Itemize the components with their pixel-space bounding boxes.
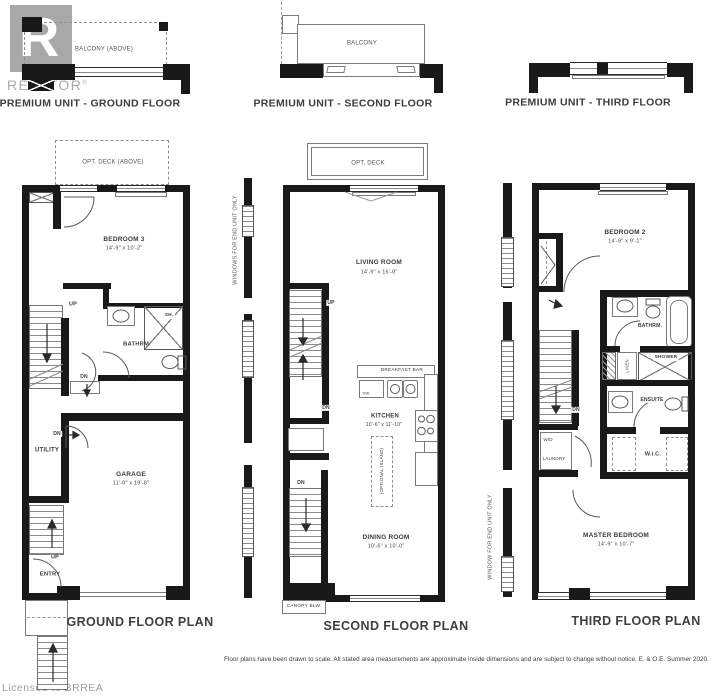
dn-label: DN [52,431,62,437]
door-panel [396,66,415,73]
staircase [539,330,572,423]
garage-label: GARAGE [116,471,146,479]
window-sill [572,75,665,79]
dn-label: DN [321,405,331,411]
wall-segment [22,496,69,503]
exterior-stairs [37,636,68,690]
wall-segment [22,17,42,32]
chase [602,352,616,380]
wall-break [244,298,252,314]
breakfast-bar-label: BREAKFAST BAR [381,368,423,374]
dining-room-label: DINING ROOM [363,534,410,542]
wall-segment [600,380,695,386]
dn-label: DN [296,480,306,486]
window-sill [115,192,167,197]
up-label: UP [326,300,335,306]
staircase [29,305,63,389]
header-ground-title: PREMIUM UNIT - GROUND FLOOR [0,97,180,110]
window [60,185,97,192]
up-label: UP [69,302,77,309]
wall-segment [434,78,443,93]
up-label: UP [50,555,60,562]
entry-stoop-marker [28,80,54,91]
header-third-title: PREMIUM UNIT - THIRD FLOOR [505,96,671,109]
vanity [608,391,633,413]
wall-segment [61,421,69,498]
window [538,592,571,600]
stair-landing [70,381,100,394]
shower-label: SH. [164,313,175,319]
bathroom-label: BATHRM. [123,341,151,348]
wall-segment [420,64,443,78]
end-unit-window [501,237,514,287]
bedroom2-label: BEDROOM 2 [604,229,645,237]
wall-break [503,288,512,302]
bathtub-basin [670,300,688,344]
wall-segment [569,588,590,600]
wall-segment [283,583,335,595]
utility-label: UTILITY [35,447,59,455]
dn-label: DN [79,374,89,380]
end-unit-window [501,556,514,592]
registered-mark: ® [82,80,88,86]
wall-segment [529,77,538,93]
wall-segment [283,418,329,424]
door-panel [326,66,345,73]
kitchen-sink [387,380,403,398]
wall-segment [98,375,190,381]
end-unit-window [242,205,254,237]
ensuite-label: ENSUITE [639,397,664,403]
window [570,62,667,75]
third-end-unit-note: WINDOW FOR END UNIT ONLY [488,494,495,580]
linen-label: LINEN [624,359,629,372]
patio-door [350,185,418,192]
wall-segment [57,586,80,600]
stoop-edge [27,617,66,618]
wall-segment [53,192,61,229]
door-sill [352,192,416,196]
canopy-label: CANOPY BLW. [287,604,322,610]
wall-break [244,443,252,465]
living-room-label: LIVING ROOM [356,259,402,267]
third-plan-title: THIRD FLOOR PLAN [571,614,700,628]
wall-segment [61,413,190,421]
living-room-dims: 14'-9" x 16'-0" [361,270,398,277]
wall-segment [684,77,693,93]
dn-label: DN [571,407,581,413]
wall-segment [159,22,168,31]
entry-label: ENTRY [40,571,60,578]
staircase-down [289,488,322,557]
ground-plan-title: GROUND FLOOR PLAN [66,615,213,629]
vanity [612,297,638,317]
end-unit-window [501,340,514,420]
second-end-unit-note: WINDOWS FOR END UNIT ONLY [233,195,240,284]
washer-dryer-label: W/D [543,437,552,443]
stove [415,410,438,442]
wall-segment [163,64,190,80]
entry-staircase [29,505,64,555]
wall-segment [597,63,608,74]
fridge [415,452,438,486]
bedroom2-dims: 14'-9" x 9'-1" [608,239,642,246]
kitchen-label: KITCHEN [371,413,399,421]
laundry-label: LAUNDRY [543,456,566,462]
dishwasher-label: DW [362,391,369,396]
window-sill [598,191,668,195]
window [350,595,420,602]
second-deck-label: OPT. DECK [351,160,384,168]
header-second-balcony-label: BALCONY [347,40,377,48]
header-second-title: PREMIUM UNIT - SECOND FLOOR [253,97,432,110]
wall-segment [321,470,328,588]
island-label: (OPTIONAL ISLAND) [379,448,385,495]
wall-segment [666,586,695,600]
end-unit-window [242,320,254,378]
end-unit-window [242,487,254,557]
window [117,185,165,192]
entry-stoop [25,600,68,636]
wall-segment [22,64,75,80]
wall-segment [280,64,323,78]
kitchen-sink [403,380,418,398]
master-bedroom-dims: 14'-9" x 10'-7" [598,542,635,549]
header-ground-balcony-label: BALCONY (ABOVE) [75,46,133,54]
second-plan-title: SECOND FLOOR PLAN [324,619,469,633]
bathroom-label: BATHRM. [637,323,663,329]
wall-segment [166,586,190,600]
disclaimer: Floor plans have been drawn to scale. Al… [224,656,716,663]
closet [29,192,55,203]
vanity [107,306,135,326]
master-bedroom-label: MASTER BEDROOM [583,532,649,540]
wall-segment [532,424,578,430]
wall-segment [283,453,329,460]
wic-label: W.I.C. [645,452,661,459]
wall-segment [600,427,636,434]
wall-segment [532,470,578,477]
window [600,183,666,191]
wardrobe [612,437,636,471]
wall-segment [600,472,695,479]
wall-segment [556,233,563,292]
bedroom3-label: BEDROOM 3 [103,236,144,244]
wall-segment [529,63,570,77]
shower-label: SHOWER [654,355,679,361]
garage-dims: 11'-0" x 19'-8" [113,481,149,488]
window [75,67,163,77]
wall-break [503,470,512,488]
wardrobe [666,437,688,471]
dining-room-dims: 10'-6" x 10'-0" [368,544,405,551]
bedroom3-dims: 14'-9" x 10'-2" [106,246,143,253]
wall-segment [181,80,190,94]
kitchen-dims: 10'-6" x 11'-10" [366,422,402,428]
floorplan-sheet: { "watermark": { "realtor_logo_letter": … [0,0,720,697]
window [590,592,668,600]
stair-landing [288,428,324,451]
wall-segment [61,318,69,396]
staircase-up [289,290,322,377]
closet-divider [546,241,547,289]
ground-deck-label: OPT. DECK (ABOVE) [82,159,143,167]
wall-segment [537,286,563,292]
wall-segment [660,427,695,434]
wall-segment [667,63,693,77]
garage-door [78,592,168,597]
